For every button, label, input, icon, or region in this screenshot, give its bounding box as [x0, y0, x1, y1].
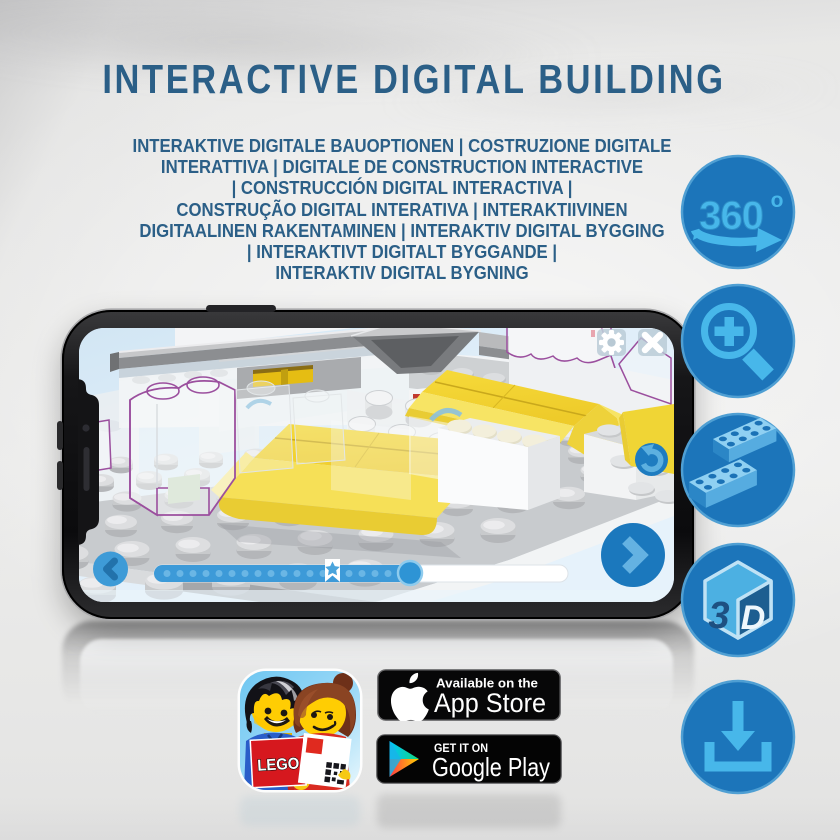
svg-text:Google Play: Google Play [432, 752, 550, 782]
svg-text:360: 360 [699, 194, 763, 238]
svg-text:LEGO: LEGO [257, 756, 300, 775]
svg-text:3: 3 [708, 595, 729, 637]
svg-text:o: o [771, 189, 784, 212]
svg-text:App Store: App Store [434, 688, 546, 718]
svg-text:D: D [741, 599, 766, 637]
